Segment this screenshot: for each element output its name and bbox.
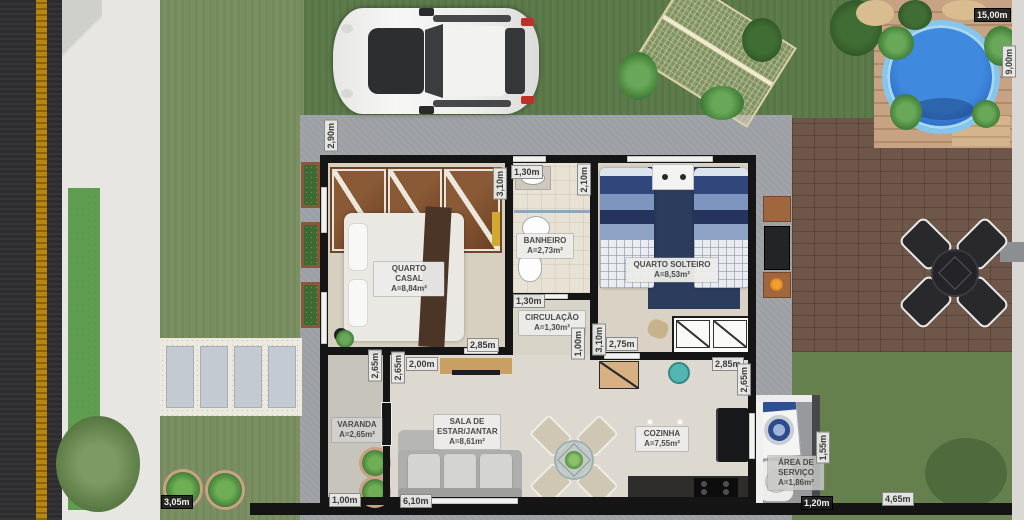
car-side-window <box>433 100 511 107</box>
grill-bench-top <box>763 196 791 222</box>
room-area: A=7,55m² <box>639 439 685 449</box>
window-banheiro <box>512 156 546 162</box>
window-quarto-casal <box>321 292 327 344</box>
driveway-ramp <box>62 0 102 72</box>
dim-label: 1,20m <box>801 496 833 510</box>
door-quarto-solteiro <box>604 353 640 359</box>
front-yard-grass <box>160 0 304 520</box>
dim-label: 2,65m <box>737 364 751 396</box>
deck-spiky-plant <box>972 100 1000 128</box>
wardrobe-door <box>713 320 747 348</box>
deck-palm-plant <box>878 26 914 60</box>
room-name: QUARTO CASAL <box>377 264 441 284</box>
car-windshield <box>425 24 443 98</box>
wardrobe-solteiro <box>672 316 750 354</box>
deck-foliage <box>898 0 932 30</box>
wardrobe-door <box>676 320 710 348</box>
washing-machine <box>757 398 802 459</box>
car-taillight <box>521 18 534 26</box>
refrigerator <box>716 408 749 462</box>
car-headlight <box>341 89 353 98</box>
room-label-sala: SALA DE ESTAR/JANTAR A=8,61m² <box>434 415 500 449</box>
room-name: VARANDA <box>335 420 379 430</box>
room-label-quarto-casal: QUARTO CASAL A=8,84m² <box>374 262 444 296</box>
front-door <box>381 402 392 446</box>
dim-label: 1,00m <box>329 493 361 507</box>
window-sill-bench <box>492 212 500 246</box>
room-area: A=2,73m² <box>520 246 570 256</box>
wall-planter-box <box>301 282 320 328</box>
car-headlight <box>341 24 353 33</box>
door-banheiro <box>542 294 568 299</box>
dining-set <box>532 420 616 500</box>
burner <box>723 489 729 495</box>
dim-label: 6,10m <box>400 494 432 508</box>
room-label-varanda: VARANDA A=2,65m² <box>332 418 382 442</box>
dim-label: 2,65m <box>391 352 405 384</box>
garden-plant <box>700 86 744 120</box>
deck-round-stone <box>856 0 894 26</box>
dim-label: 2,90m <box>324 120 338 152</box>
bedroom-plant <box>336 330 354 348</box>
dim-label: 2,00m <box>406 357 438 371</box>
deck-palm-plant <box>890 94 922 130</box>
car-mirror <box>419 8 434 16</box>
yard-potted-plant <box>208 473 242 507</box>
room-label-cozinha: COZINHA A=7,55m² <box>636 427 688 451</box>
stepping-stone-path <box>160 338 302 416</box>
teal-stool <box>668 362 690 384</box>
window-sala <box>430 498 518 504</box>
dim-label-lot: 4,65m <box>882 492 914 506</box>
car-roof <box>443 26 505 96</box>
floor-plan-scene: QUARTO CASAL A=8,84m² BANHEIRO A=2,73m² … <box>0 0 1024 520</box>
pillow <box>348 223 368 271</box>
dim-label: 2,75m <box>606 337 638 351</box>
car-sunroof <box>368 28 424 94</box>
outdoor-table-inlay <box>938 256 972 290</box>
car-side-window <box>433 15 511 22</box>
dim-label: 1,00m <box>571 328 585 360</box>
car-mirror <box>419 106 434 114</box>
pillow <box>348 279 368 327</box>
ceiling-spotlight <box>678 420 682 424</box>
paver-stone <box>234 346 262 408</box>
car-taillight <box>521 96 534 104</box>
room-name: CIRCULAÇÃO <box>522 313 582 323</box>
window-quarto-solteiro <box>627 156 713 162</box>
room-name: COZINHA <box>639 429 685 439</box>
dim-label: 1,30m <box>511 165 543 179</box>
area-servico-divider <box>756 402 763 503</box>
garden-plant <box>618 52 658 100</box>
room-name: BANHEIRO <box>520 236 570 246</box>
room-area: A=2,65m² <box>335 430 379 440</box>
barbecue-grill <box>764 226 790 270</box>
table-centerpiece-plant <box>565 451 583 469</box>
dim-label: 1,30m <box>513 294 545 308</box>
tv <box>452 370 500 375</box>
outdoor-round-table <box>931 249 979 297</box>
dim-label: 2,10m <box>577 164 591 196</box>
garden-foliage <box>742 18 782 62</box>
stove-cooktop <box>694 478 738 498</box>
road-center-line <box>36 0 47 520</box>
dim-label-lot: 9,00m <box>1002 46 1016 78</box>
wall-planter-box <box>301 222 320 268</box>
room-area: A=8,84m² <box>377 284 441 294</box>
dim-label-lot: 3,05m <box>161 495 193 509</box>
paver-stone <box>166 346 194 408</box>
dim-label: 1,55m <box>816 432 830 464</box>
burner <box>701 481 707 487</box>
street-road <box>0 0 62 520</box>
dim-label-lot: 15,00m <box>974 8 1011 22</box>
knob <box>662 174 668 180</box>
area-servico-lintel <box>756 395 818 402</box>
dim-label: 2,65m <box>368 350 382 382</box>
kitchen-side-table <box>599 361 639 389</box>
room-area: A=8,53m² <box>629 270 715 280</box>
sidewalk-bush <box>56 416 140 512</box>
room-label-banheiro: BANHEIRO A=2,73m² <box>517 234 573 258</box>
knob <box>680 174 686 180</box>
burner <box>723 481 729 487</box>
wall-planter-box <box>301 162 320 208</box>
dim-label: 3,10m <box>592 324 606 356</box>
car-rear-window <box>505 28 525 94</box>
room-area: A=8,61m² <box>437 437 497 447</box>
ceiling-spotlight <box>648 420 652 424</box>
shower-glass-partition <box>514 210 590 213</box>
parked-car <box>333 8 539 114</box>
dim-label: 2,85m <box>467 338 499 352</box>
room-name: QUARTO SOLTEIRO <box>629 260 715 270</box>
room-name: ÁREA DE SERVIÇO <box>771 458 821 478</box>
nightstand <box>652 164 694 190</box>
grill-fire <box>770 278 783 291</box>
burner <box>701 489 707 495</box>
window-quarto-casal <box>321 187 327 233</box>
grass-shadow-patch <box>925 438 1007 508</box>
dim-label: 3,10m <box>493 168 507 200</box>
room-label-quarto-solteiro: QUARTO SOLTEIRO A=8,53m² <box>626 258 718 282</box>
paver-stone <box>200 346 228 408</box>
room-name: SALA DE ESTAR/JANTAR <box>437 417 497 437</box>
paver-stone <box>268 346 296 408</box>
door-area-servico <box>749 413 755 459</box>
room-area: A=1,86m² <box>771 478 821 488</box>
